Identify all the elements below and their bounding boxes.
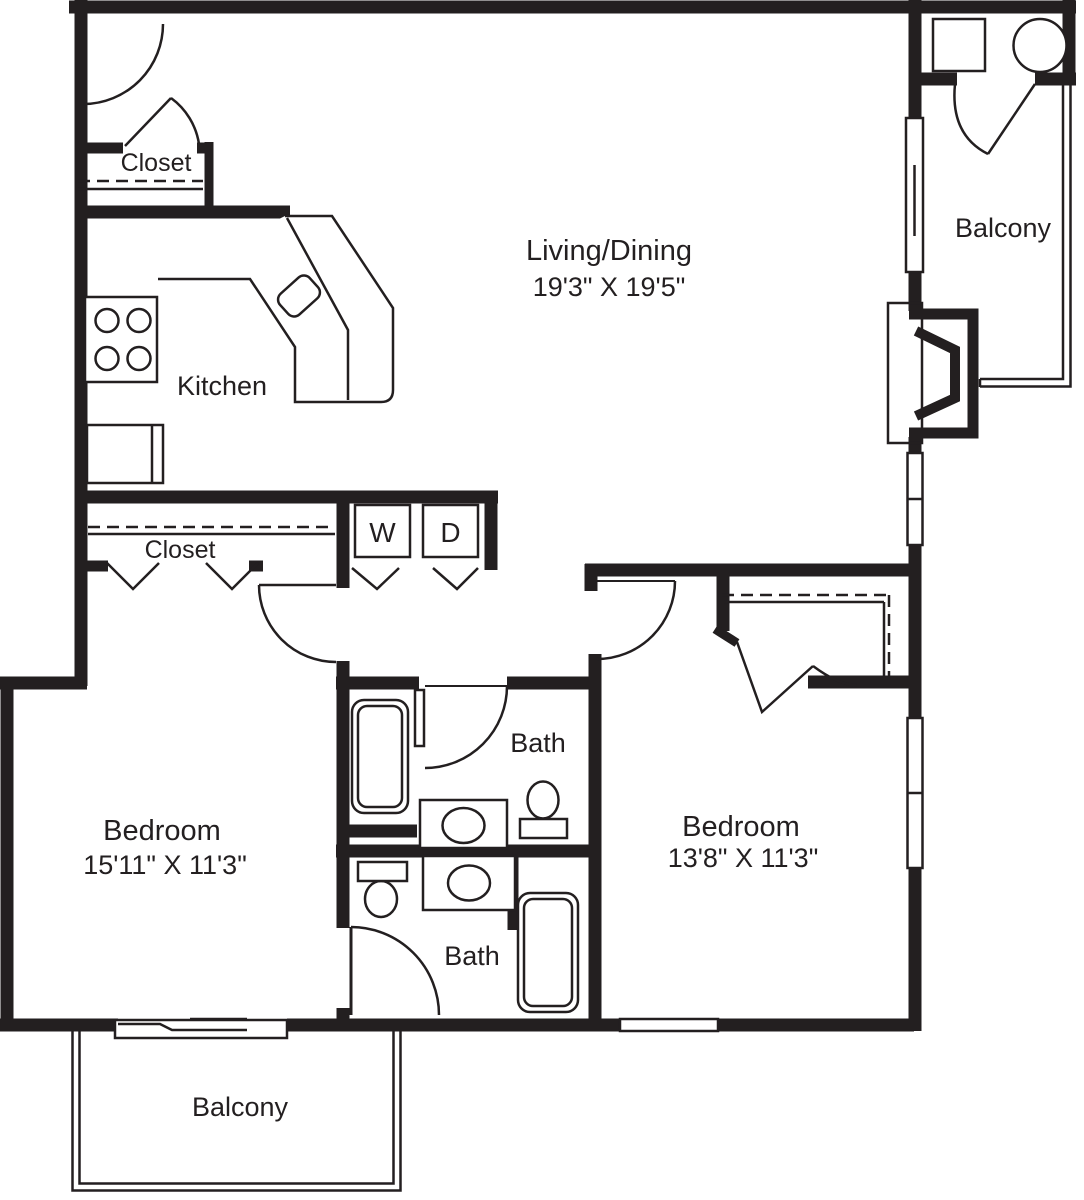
bifold-chevron [352,568,399,589]
wall-hall-top [585,564,920,591]
bath-upper-wall-stub [415,690,424,746]
door-arc [597,581,675,659]
door-arc [954,84,988,154]
bedroom1-door [259,585,336,662]
bifold-chevron [107,563,159,589]
closet-shelves [78,181,889,680]
tub-outer [352,700,408,813]
storage-double-door [954,84,1035,154]
kitchen-label: Kitchen [177,371,267,401]
dryer-label: D [440,517,460,548]
door-arc [351,927,439,1015]
kitchen-fixtures [85,216,393,483]
bedroom2-dimensions: 13'8" X 11'3" [668,843,819,873]
window-bedroom2-bottom [620,1019,718,1031]
storage-room-items [933,19,1067,72]
door-arc [171,98,199,144]
bedroom2-label: Bedroom [682,811,800,843]
bath-upper-door [425,686,507,768]
washer-label: W [369,517,396,548]
toilet-tank [358,862,407,881]
living-dining-label: Living/Dining [526,235,692,267]
bedroom1-label: Bedroom [103,815,221,847]
entry-closet-label: Closet [121,149,192,177]
bedroom1-dimensions: 15'11" X 11'3" [83,850,247,880]
door-leaf [125,98,171,146]
toilet-tank [520,819,567,838]
refrigerator [87,425,163,483]
bifold-leaf [737,642,813,712]
bedroom2-door [597,581,675,659]
door-arc [425,686,507,768]
stove [85,297,157,382]
storage-unit [933,19,985,71]
bifold-chevron [433,568,478,589]
tub-outer [518,893,578,1012]
bathtub-lower [518,893,578,1012]
door-leaf [988,84,1035,154]
bath-lower-door [351,927,439,1015]
entry-door-arc [84,24,163,104]
bedroom2-closet-rod [724,602,884,678]
bath-upper-label: Bath [510,728,566,758]
balcony-bottom-label: Balcony [192,1092,289,1122]
sliding-door-top-balcony [906,118,923,272]
bath-lower-label: Bath [444,941,500,971]
balcony-top-label: Balcony [955,213,1052,243]
toilet-bowl [365,881,397,917]
bifold-doors-hall-closet [107,563,258,589]
living-dining-dimensions: 19'3" X 19'5" [533,272,686,302]
water-heater [1014,19,1067,72]
hall-closet-label: Closet [145,536,216,564]
vanity-upper [420,800,507,848]
vanity-lower [423,856,515,910]
bifold-doors-washer-dryer [352,568,478,589]
toilet-bowl [528,782,559,819]
floor-plan: Living/Dining 19'3" X 19'5" Kitchen Clos… [0,0,1084,1200]
toilet-upper [520,782,567,839]
vanity-counter [423,856,515,910]
toilet-lower [358,862,407,917]
stove-body [85,297,157,382]
entry-closet-door [125,98,199,146]
bathtub-upper [352,700,408,813]
fireplace [888,303,973,443]
wall-bedroom2-stub-diagonal [715,629,737,643]
door-arc [259,585,336,662]
fireplace-hearth [888,303,922,443]
sliding-door-bottom-balcony [115,1019,287,1038]
